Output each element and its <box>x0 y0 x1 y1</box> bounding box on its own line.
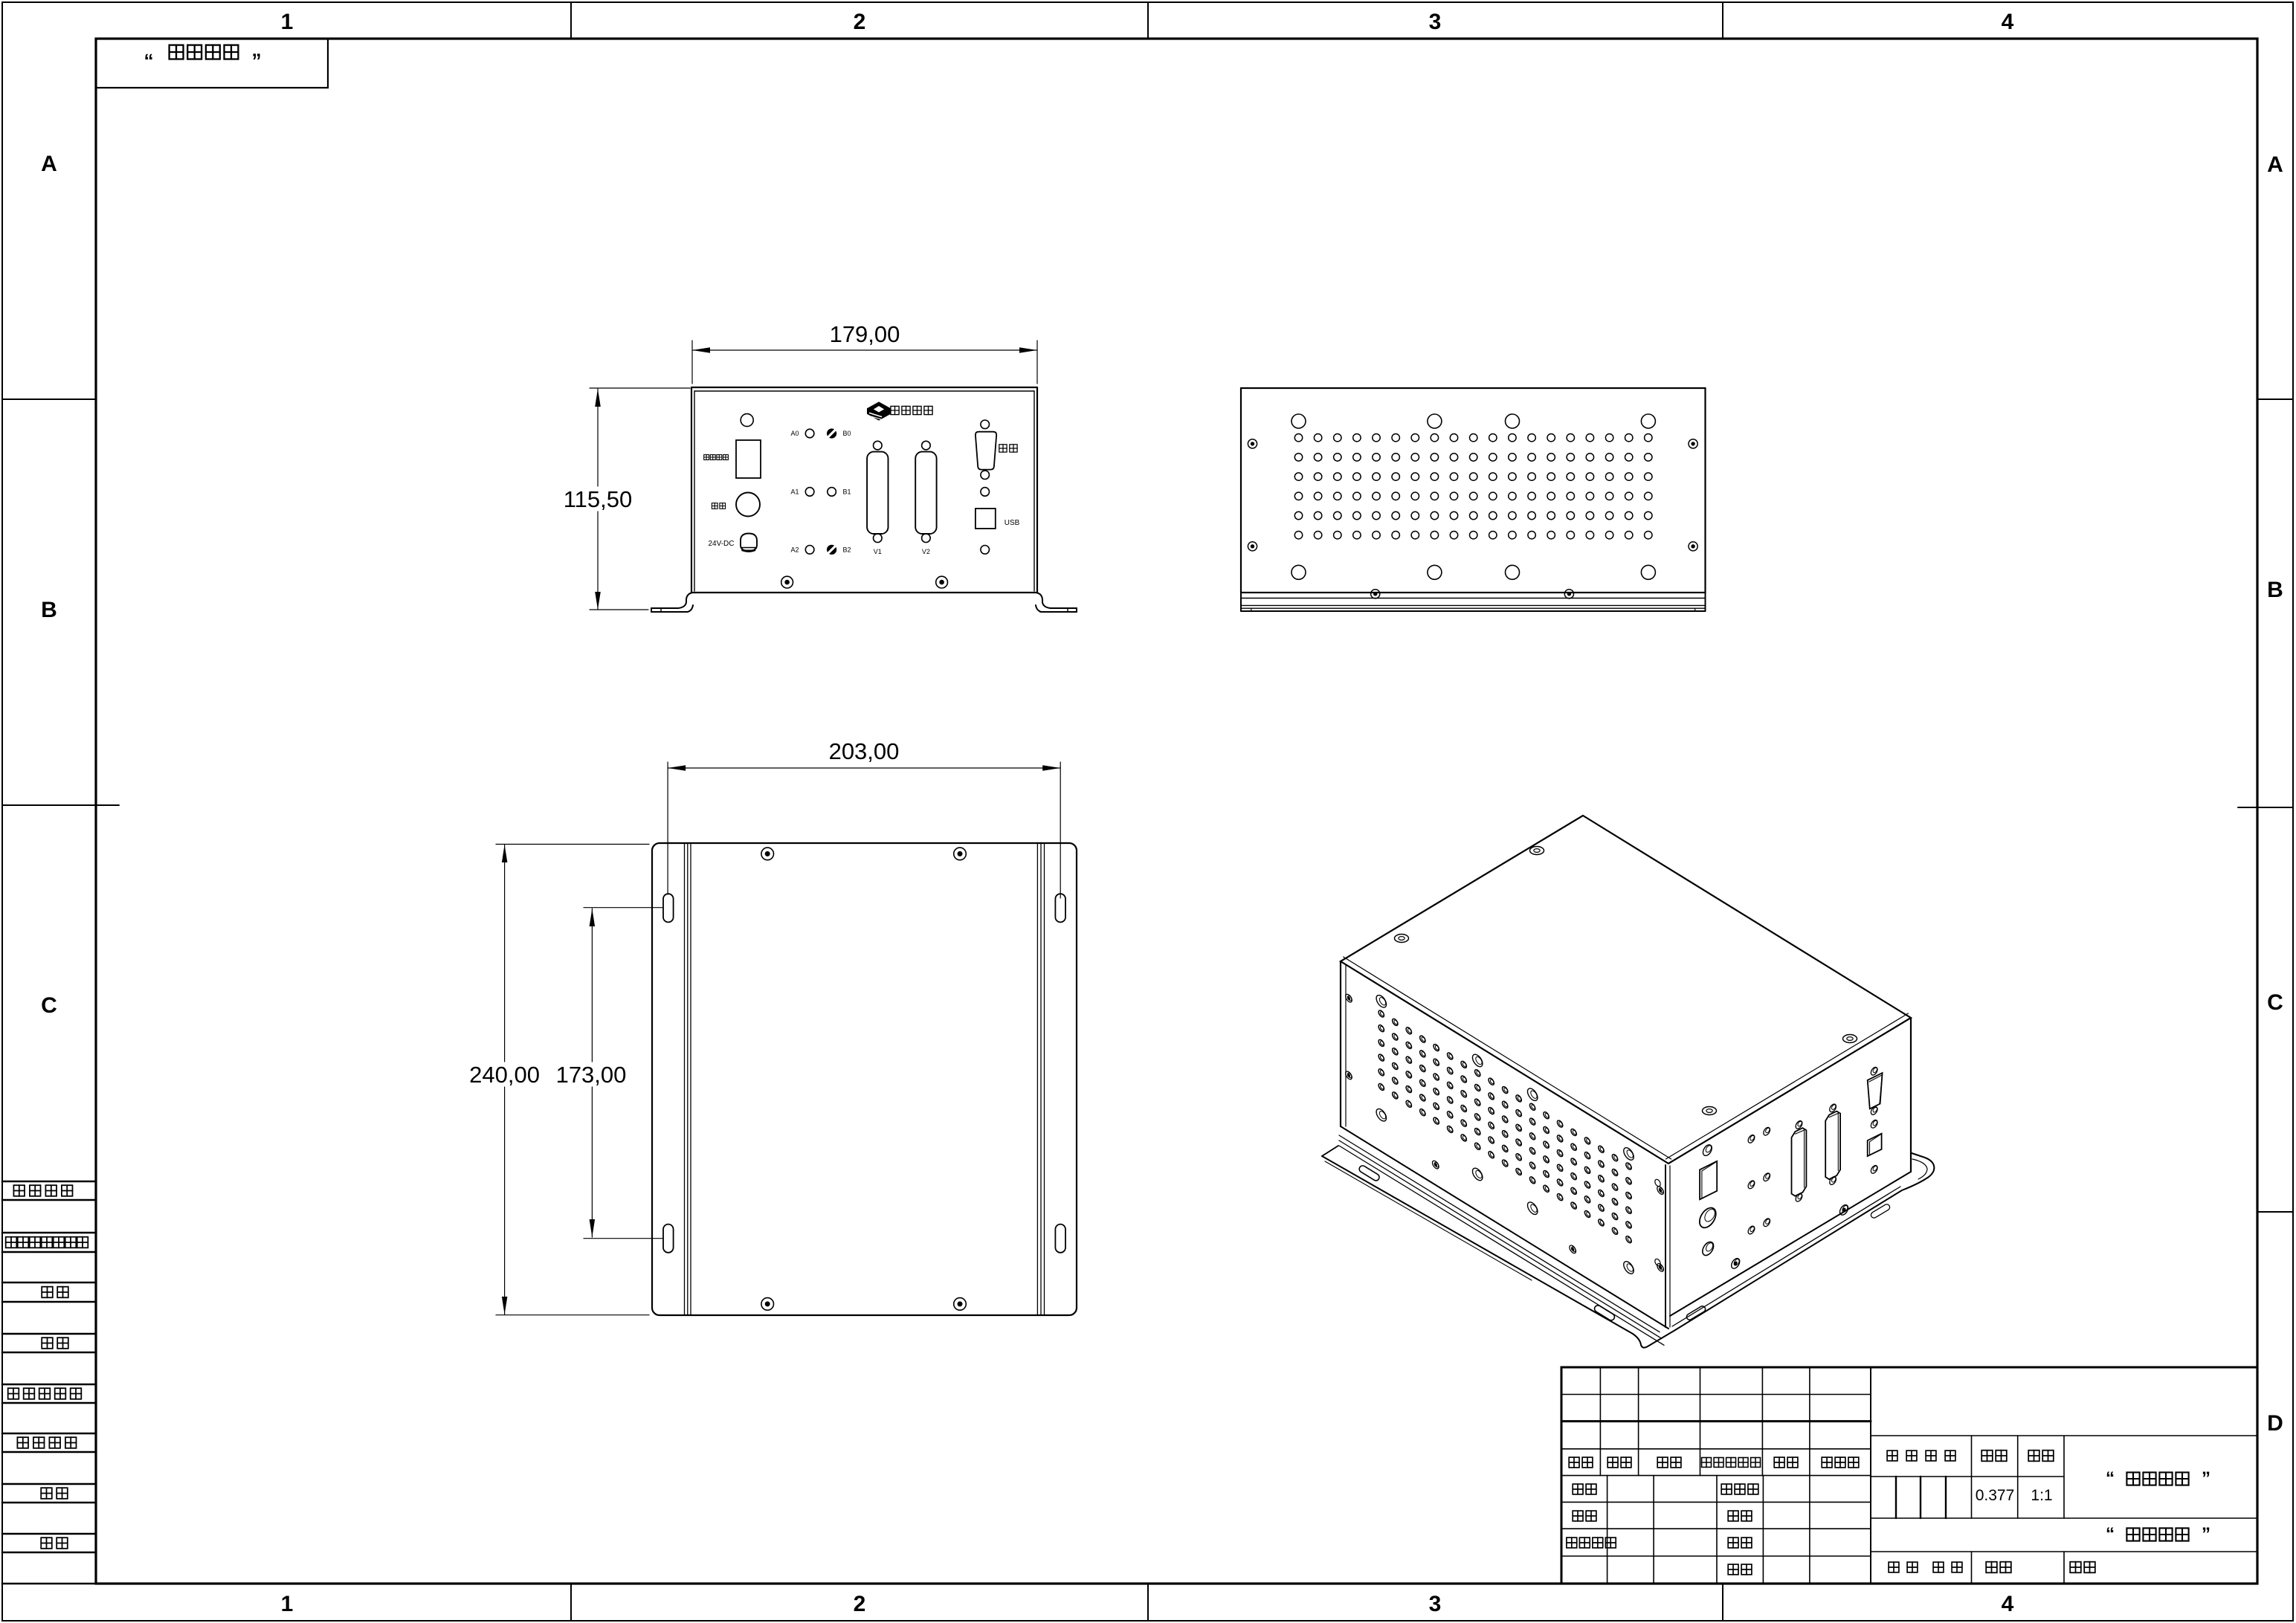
svg-text:1: 1 <box>281 10 294 34</box>
svg-text:D: D <box>2267 1411 2283 1436</box>
svg-text:115,50: 115,50 <box>564 486 633 512</box>
svg-text:4: 4 <box>2002 1592 2014 1616</box>
svg-text:24V-DC: 24V-DC <box>708 540 734 548</box>
svg-text:V1: V1 <box>874 548 882 555</box>
svg-text:1: 1 <box>281 1592 294 1616</box>
svg-text:4: 4 <box>2002 10 2014 34</box>
svg-text:3: 3 <box>1429 10 1442 34</box>
svg-text:B1: B1 <box>842 488 851 495</box>
svg-text:C: C <box>41 993 57 1018</box>
svg-text:240,00: 240,00 <box>469 1062 540 1088</box>
svg-text:A1: A1 <box>790 488 799 495</box>
svg-text:A: A <box>41 152 57 176</box>
svg-text:3: 3 <box>1429 1592 1442 1616</box>
svg-text:V2: V2 <box>922 548 930 555</box>
svg-text:“: “ <box>252 42 262 64</box>
svg-text:”: ” <box>2202 1468 2210 1488</box>
svg-text:C: C <box>2267 990 2283 1015</box>
svg-text:A: A <box>2267 152 2283 177</box>
svg-text:B: B <box>2267 578 2283 602</box>
svg-text:”: ” <box>2202 1524 2210 1544</box>
svg-text:A0: A0 <box>790 430 799 437</box>
svg-text:0.377: 0.377 <box>1976 1487 2015 1504</box>
svg-text:179,00: 179,00 <box>830 321 900 347</box>
svg-text:B: B <box>41 598 57 622</box>
svg-text:203,00: 203,00 <box>829 738 900 764</box>
svg-text:B2: B2 <box>842 546 851 553</box>
svg-text:173,00: 173,00 <box>556 1062 627 1088</box>
svg-text:2: 2 <box>854 10 866 34</box>
svg-text:“: “ <box>2106 1524 2115 1544</box>
svg-text:”: ” <box>144 42 154 64</box>
svg-text:A2: A2 <box>790 546 799 553</box>
svg-text:“: “ <box>2106 1468 2115 1488</box>
svg-text:2: 2 <box>854 1592 866 1616</box>
svg-text:1:1: 1:1 <box>2031 1487 2052 1504</box>
svg-text:B0: B0 <box>842 430 851 437</box>
svg-text:USB: USB <box>1004 519 1020 527</box>
